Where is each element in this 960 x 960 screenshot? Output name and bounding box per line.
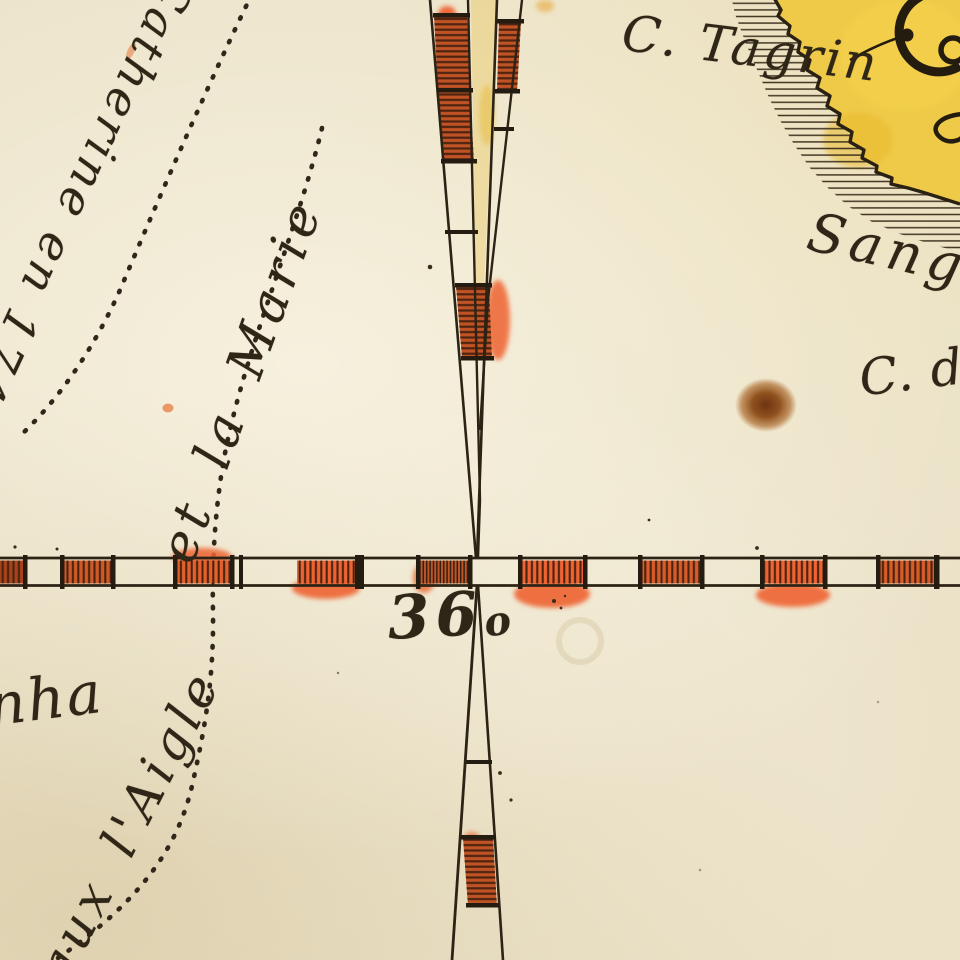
map-canvas: Catherine en 1740 et la Marie aux l'Aigl… [0,0,960,960]
ship-track-marie-aigle [58,128,322,958]
paint-flecks [124,41,173,412]
ship-track-catherine [22,0,252,434]
ink-stain [735,378,797,432]
faint-watermark [559,620,601,662]
map-engraving-svg [0,0,960,960]
